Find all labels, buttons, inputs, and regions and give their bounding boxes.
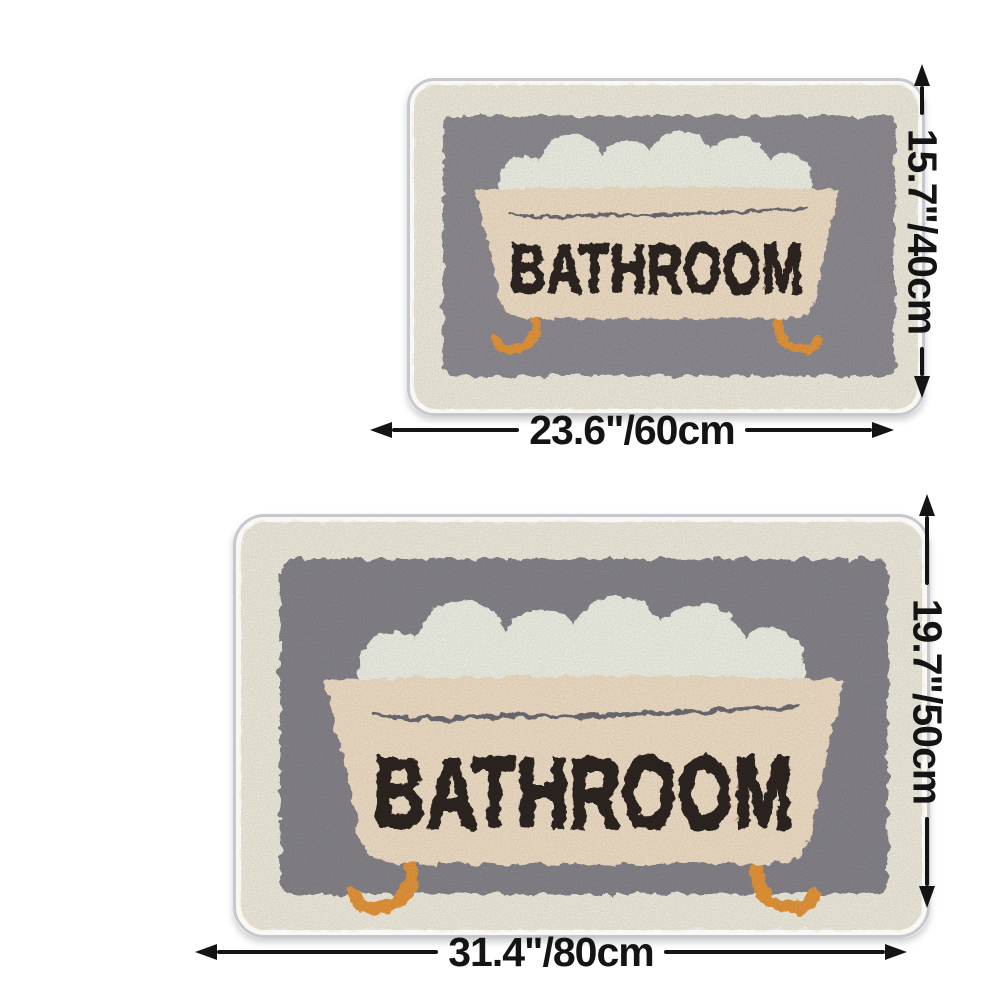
dimension-width-small: 23.6"/60cm <box>370 406 894 454</box>
dimension-line <box>920 347 924 376</box>
dimension-height-large: 19.7"/50cm <box>903 494 951 908</box>
arrow-left-icon <box>370 422 392 438</box>
height-label-box: 15.7"/40cm <box>898 115 946 347</box>
arrow-down-icon <box>919 886 935 908</box>
width-label-large: 31.4"/80cm <box>438 932 664 973</box>
bath-mat-small-graphic: BATHROOM <box>407 78 925 416</box>
height-label-box: 19.7"/50cm <box>903 585 951 817</box>
bath-mat-large: BATHROOM <box>233 514 930 938</box>
dimension-line <box>392 428 519 432</box>
dimension-line <box>664 950 885 954</box>
arrow-up-icon <box>914 64 930 86</box>
dimension-line <box>925 516 929 585</box>
dimension-line <box>745 428 872 432</box>
arrow-down-icon <box>914 376 930 398</box>
height-label-large: 19.7"/50cm <box>907 598 948 804</box>
rug-texture-overlay <box>414 85 918 409</box>
width-label-small: 23.6"/60cm <box>519 410 745 451</box>
dimension-width-large: 31.4"/80cm <box>195 928 907 976</box>
product-size-image: BATHROOM 23.6"/60cm 15.7"/40cm <box>0 0 1000 1000</box>
arrow-right-icon <box>872 422 894 438</box>
height-label-small: 15.7"/40cm <box>902 128 943 334</box>
dimension-height-small: 15.7"/40cm <box>898 64 946 398</box>
arrow-left-icon <box>195 944 217 960</box>
rug-texture-overlay <box>241 522 922 930</box>
dimension-line <box>920 86 924 115</box>
arrow-up-icon <box>919 494 935 516</box>
arrow-right-icon <box>885 944 907 960</box>
bath-mat-small: BATHROOM <box>407 78 925 416</box>
dimension-line <box>925 817 929 886</box>
bath-mat-large-graphic: BATHROOM <box>233 514 930 938</box>
dimension-line <box>217 950 438 954</box>
